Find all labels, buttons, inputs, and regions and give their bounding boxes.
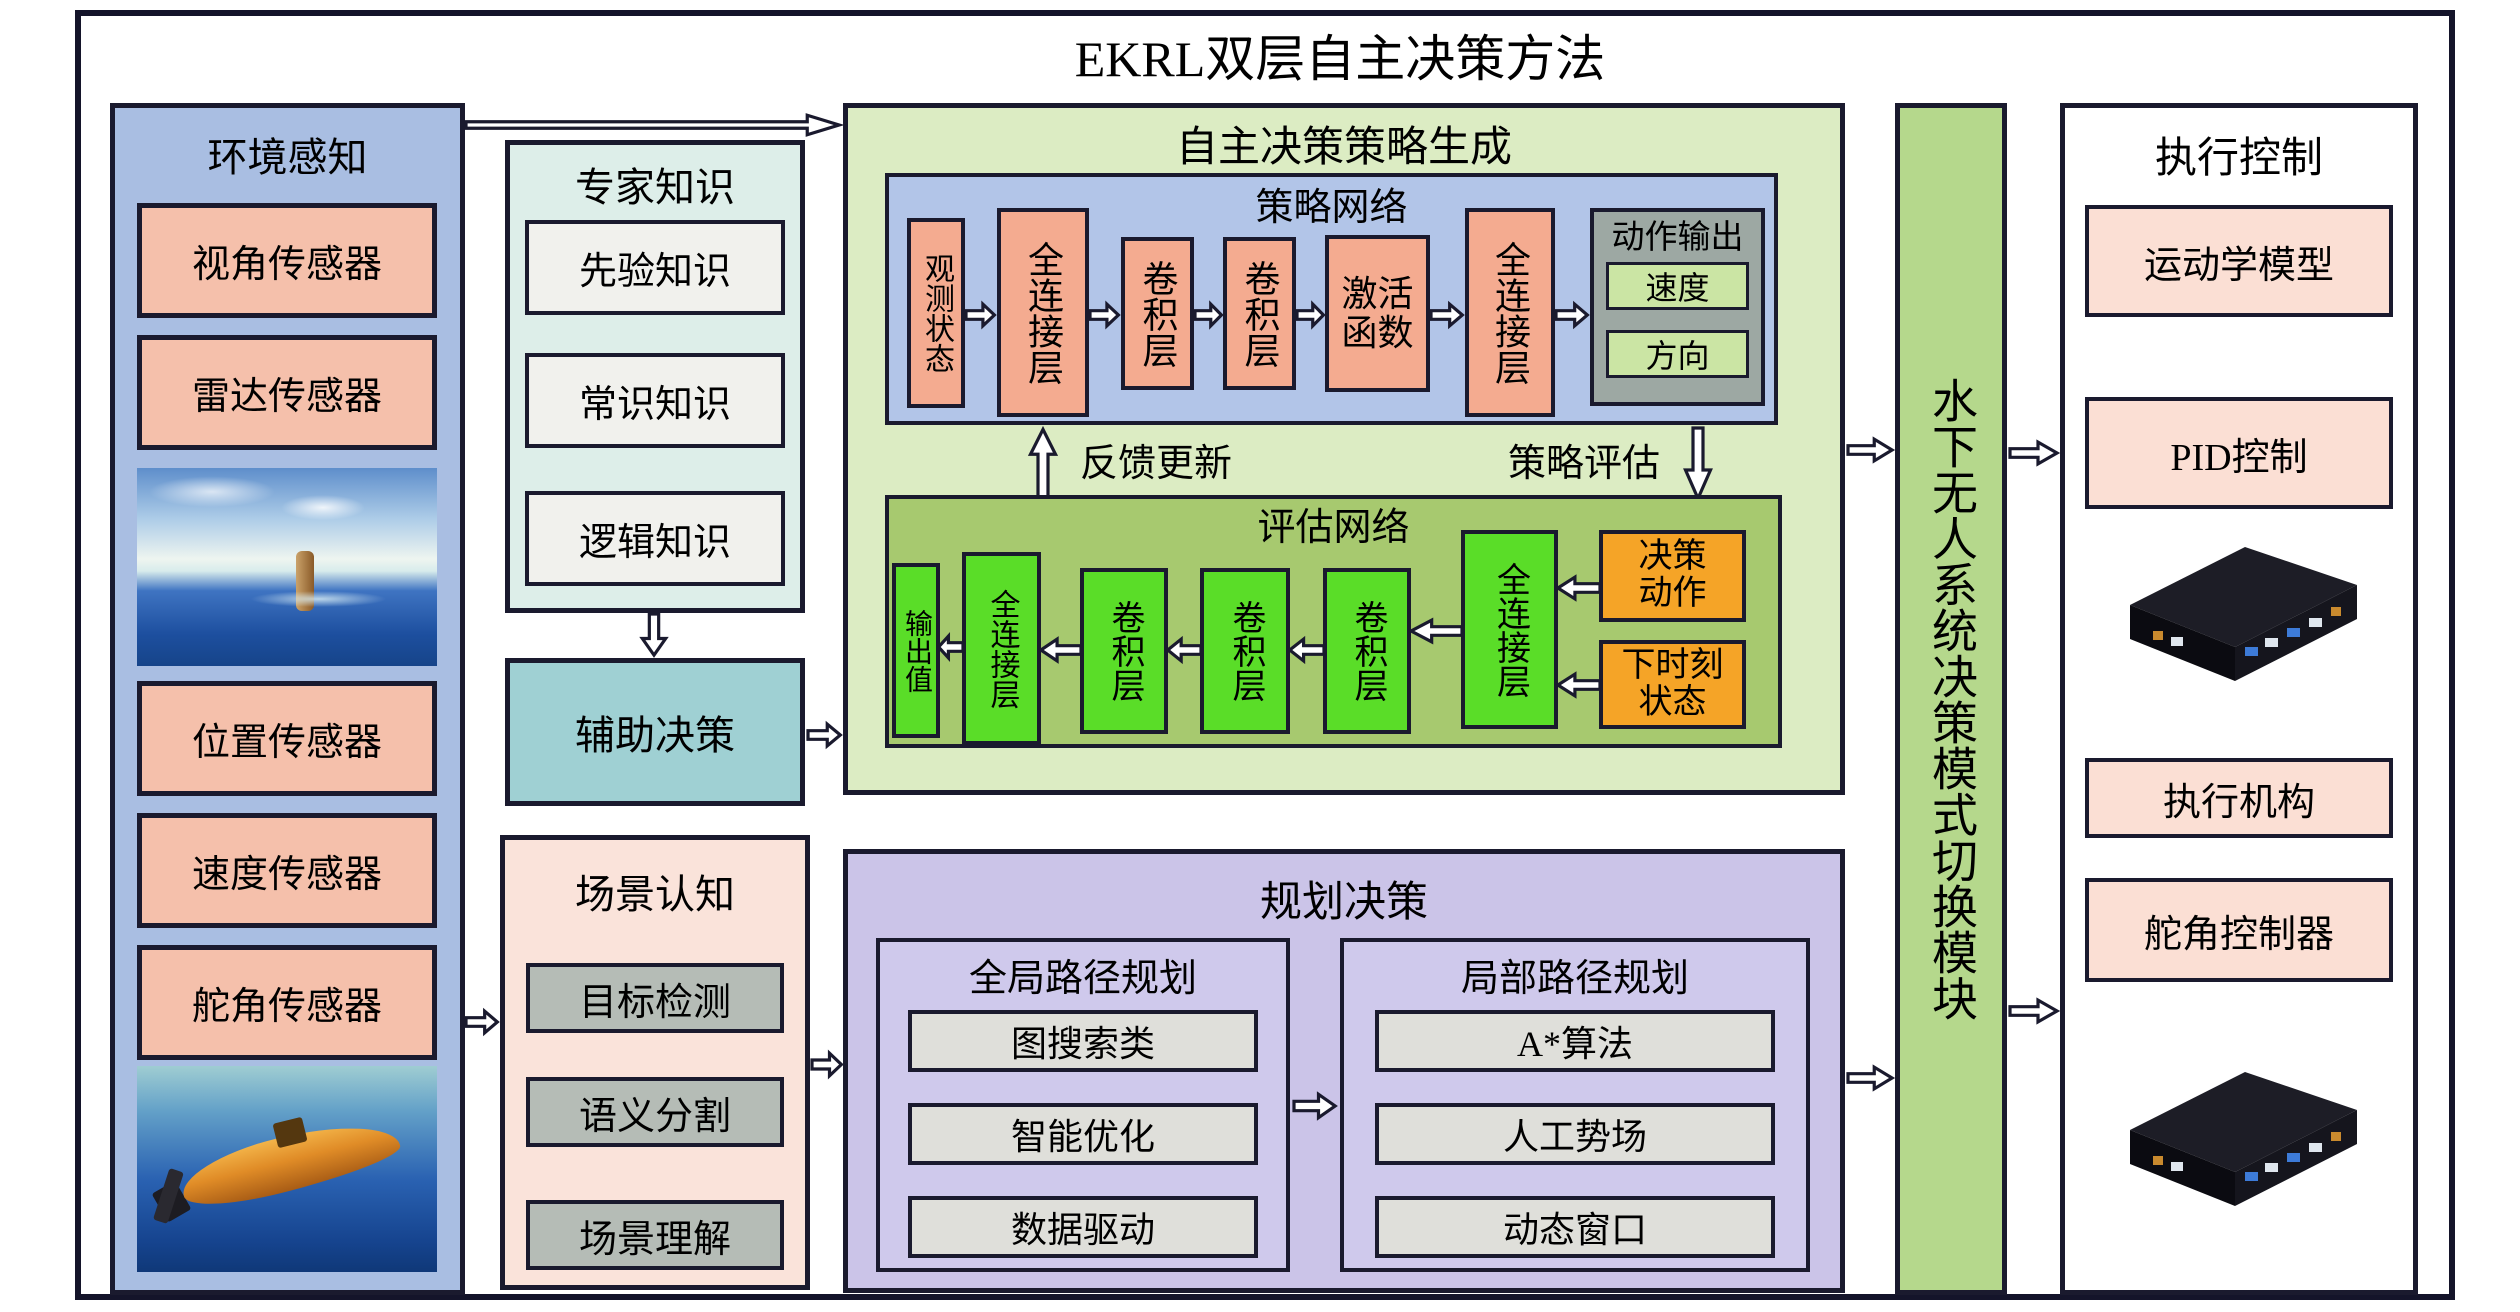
sensor-radar: 雷达传感器 bbox=[137, 335, 437, 450]
policy-fc1-block: 全连接层 bbox=[997, 208, 1089, 417]
planning-title: 规划决策 bbox=[843, 872, 1845, 924]
local-item-dynamic-window: 动态窗口 bbox=[1375, 1196, 1775, 1258]
knowledge-logic: 逻辑知识 bbox=[525, 491, 785, 586]
control-kinematic-model: 运动学模型 bbox=[2085, 205, 2393, 317]
eval-nextstate-line2: 状态 bbox=[1639, 685, 1707, 722]
arrow-right-icon bbox=[1848, 1065, 1893, 1091]
arrow-right-icon bbox=[808, 722, 841, 748]
arrow-right-icon bbox=[966, 302, 995, 328]
feedback-label: 反馈更新 bbox=[1066, 436, 1246, 482]
aux-decision-box: 辅助决策 bbox=[505, 658, 805, 806]
sensor-speed: 速度传感器 bbox=[137, 813, 437, 928]
eval-output-block: 输出值 bbox=[892, 563, 940, 738]
expert-title: 专家知识 bbox=[505, 158, 805, 210]
eval-action-block: 决策 动作 bbox=[1599, 530, 1746, 622]
control-actuator: 执行机构 bbox=[2085, 758, 2393, 838]
control-pid: PID控制 bbox=[2085, 397, 2393, 509]
arrow-left-icon bbox=[1557, 672, 1600, 698]
activation-line2: 函数 bbox=[1341, 314, 1413, 353]
scene-segment: 语义分割 bbox=[526, 1077, 784, 1147]
arrow-right-icon bbox=[1556, 302, 1588, 328]
policy-fc2-block: 全连接层 bbox=[1465, 208, 1555, 417]
eval-fc1-block: 全连接层 bbox=[962, 552, 1041, 745]
scene-understand: 场景理解 bbox=[526, 1200, 784, 1270]
policy-state-block: 观测状态 bbox=[907, 218, 965, 408]
direction-box: 方向 bbox=[1606, 330, 1749, 378]
arrow-right-icon bbox=[1195, 302, 1222, 328]
global-planning-title: 全局路径规划 bbox=[876, 950, 1290, 998]
scene-detect: 目标检测 bbox=[526, 963, 784, 1033]
arrow-down-icon bbox=[1683, 428, 1713, 500]
perception-title: 环境感知 bbox=[110, 128, 465, 180]
arrow-right-icon bbox=[1297, 302, 1324, 328]
arrow-left-icon bbox=[1040, 637, 1081, 663]
arrow-right-icon bbox=[2010, 998, 2058, 1024]
sensor-rudder: 舵角传感器 bbox=[137, 945, 437, 1060]
local-planning-title: 局部路径规划 bbox=[1340, 950, 1810, 998]
eval-nextstate-line1: 下时刻 bbox=[1622, 648, 1724, 685]
policy-conv2-block: 卷积层 bbox=[1223, 237, 1296, 390]
global-item-data-driven: 数据驱动 bbox=[908, 1196, 1258, 1258]
knowledge-common: 常识知识 bbox=[525, 353, 785, 448]
control-title: 执行控制 bbox=[2060, 128, 2418, 180]
submarine-image bbox=[137, 1066, 437, 1272]
eval-conv1-block: 卷积层 bbox=[1080, 568, 1168, 734]
arrow-up-icon bbox=[1028, 428, 1058, 498]
hardware-computer-image bbox=[2095, 535, 2385, 695]
eval-action-line2: 动作 bbox=[1639, 576, 1707, 613]
sensor-view: 视角传感器 bbox=[137, 203, 437, 318]
eval-conv2-block: 卷积层 bbox=[1200, 568, 1290, 734]
scene-title: 场景认知 bbox=[500, 865, 810, 917]
sea-surface-image bbox=[137, 468, 437, 666]
local-item-potential-field: 人工势场 bbox=[1375, 1103, 1775, 1165]
knowledge-prior: 先验知识 bbox=[525, 220, 785, 315]
wake-shape bbox=[251, 591, 386, 607]
policy-conv1-block: 卷积层 bbox=[1121, 237, 1194, 390]
diagram-title: EKRL双层自主决策方法 bbox=[860, 24, 1820, 86]
policy-eval-label: 策略评估 bbox=[1494, 436, 1674, 482]
arrow-left-icon bbox=[1167, 637, 1201, 663]
eval-action-line1: 决策 bbox=[1639, 539, 1707, 576]
global-item-graph-search: 图搜索类 bbox=[908, 1010, 1258, 1072]
eval-nextstate-block: 下时刻 状态 bbox=[1599, 640, 1746, 729]
activation-line1: 激活 bbox=[1341, 275, 1413, 314]
action-output-title: 动作输出 bbox=[1590, 214, 1765, 254]
diagram-canvas: EKRL双层自主决策方法 环境感知 视角传感器 雷达传感器 位置传感器 速度传感… bbox=[0, 0, 2520, 1312]
arrow-right-icon bbox=[812, 1051, 842, 1078]
arrow-left-icon bbox=[1557, 575, 1600, 601]
hardware-computer-image bbox=[2095, 1060, 2385, 1220]
policy-activation-block: 激活 函数 bbox=[1325, 235, 1430, 392]
eval-conv3-block: 卷积层 bbox=[1323, 568, 1411, 734]
arrow-right-icon bbox=[2010, 440, 2058, 466]
strategy-title: 自主决策策略生成 bbox=[843, 116, 1845, 170]
local-item-astar: A*算法 bbox=[1375, 1010, 1775, 1072]
arrow-right-icon bbox=[1090, 302, 1119, 328]
arrow-left-icon bbox=[938, 634, 963, 660]
arrow-down-icon bbox=[640, 614, 668, 656]
arrow-right-icon bbox=[1431, 302, 1463, 328]
arrow-left-icon bbox=[1410, 618, 1462, 644]
arrow-left-icon bbox=[1289, 637, 1324, 663]
eval-fc2-block: 全连接层 bbox=[1461, 530, 1558, 729]
arrow-right-icon bbox=[466, 1009, 498, 1035]
sensor-position: 位置传感器 bbox=[137, 681, 437, 796]
speed-box: 速度 bbox=[1606, 262, 1749, 310]
arrow-right-icon bbox=[1294, 1092, 1336, 1120]
global-item-intelligent-opt: 智能优化 bbox=[908, 1103, 1258, 1165]
arrow-right-icon bbox=[1848, 437, 1893, 463]
arrow-right-icon bbox=[466, 112, 841, 138]
control-rudder-controller: 舵角控制器 bbox=[2085, 878, 2393, 982]
mode-switch-bar: 水下无人系统决策模式切换模块 bbox=[1895, 103, 2007, 1295]
